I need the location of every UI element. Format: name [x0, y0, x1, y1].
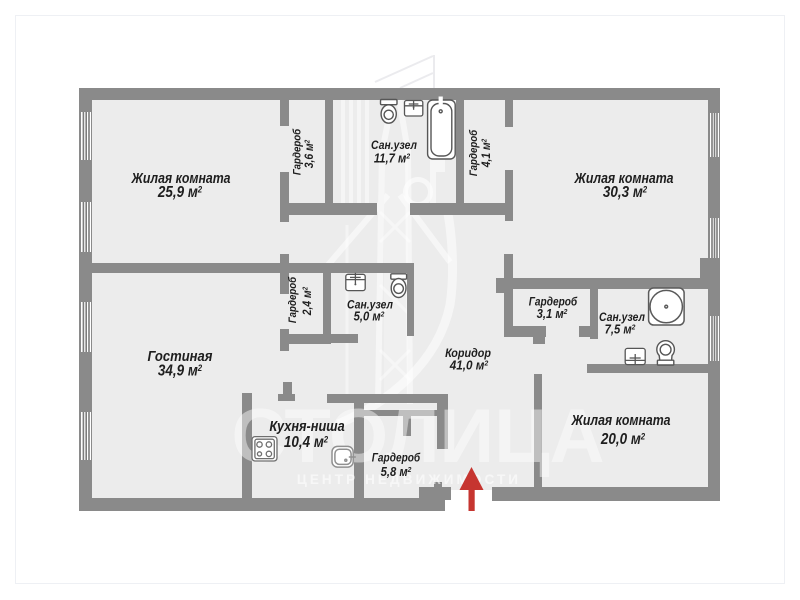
svg-text:25,9 м2: 25,9 м2	[157, 184, 203, 201]
svg-text:3,6 м2: 3,6 м2	[304, 140, 317, 169]
svg-text:Гардероб: Гардероб	[291, 128, 304, 175]
svg-text:5,8 м2: 5,8 м2	[381, 464, 412, 479]
svg-text:10,4 м2: 10,4 м2	[284, 434, 329, 451]
svg-text:20,0 м2: 20,0 м2	[600, 431, 646, 448]
svg-text:2,4 м2: 2,4 м2	[302, 287, 315, 317]
svg-text:Жилая комната: Жилая комната	[571, 412, 671, 428]
svg-text:30,3 м2: 30,3 м2	[603, 184, 648, 201]
svg-text:Гардероб: Гардероб	[372, 452, 421, 465]
svg-text:Кухня-ниша: Кухня-ниша	[269, 418, 345, 434]
svg-text:7,5 м2: 7,5 м2	[605, 322, 636, 337]
svg-text:11,7 м2: 11,7 м2	[374, 151, 410, 166]
svg-text:34,9 м2: 34,9 м2	[158, 362, 203, 379]
svg-text:Гардероб: Гардероб	[467, 129, 480, 176]
svg-text:41,0 м2: 41,0 м2	[449, 358, 488, 373]
svg-text:3,1 м2: 3,1 м2	[537, 306, 568, 321]
svg-text:4,1 м2: 4,1 м2	[481, 139, 494, 169]
svg-text:Гардероб: Гардероб	[286, 276, 299, 323]
svg-text:ЦЕНТР НЕДВИЖИМОСТИ: ЦЕНТР НЕДВИЖИМОСТИ	[297, 472, 521, 487]
svg-text:5,0 м2: 5,0 м2	[354, 309, 385, 324]
